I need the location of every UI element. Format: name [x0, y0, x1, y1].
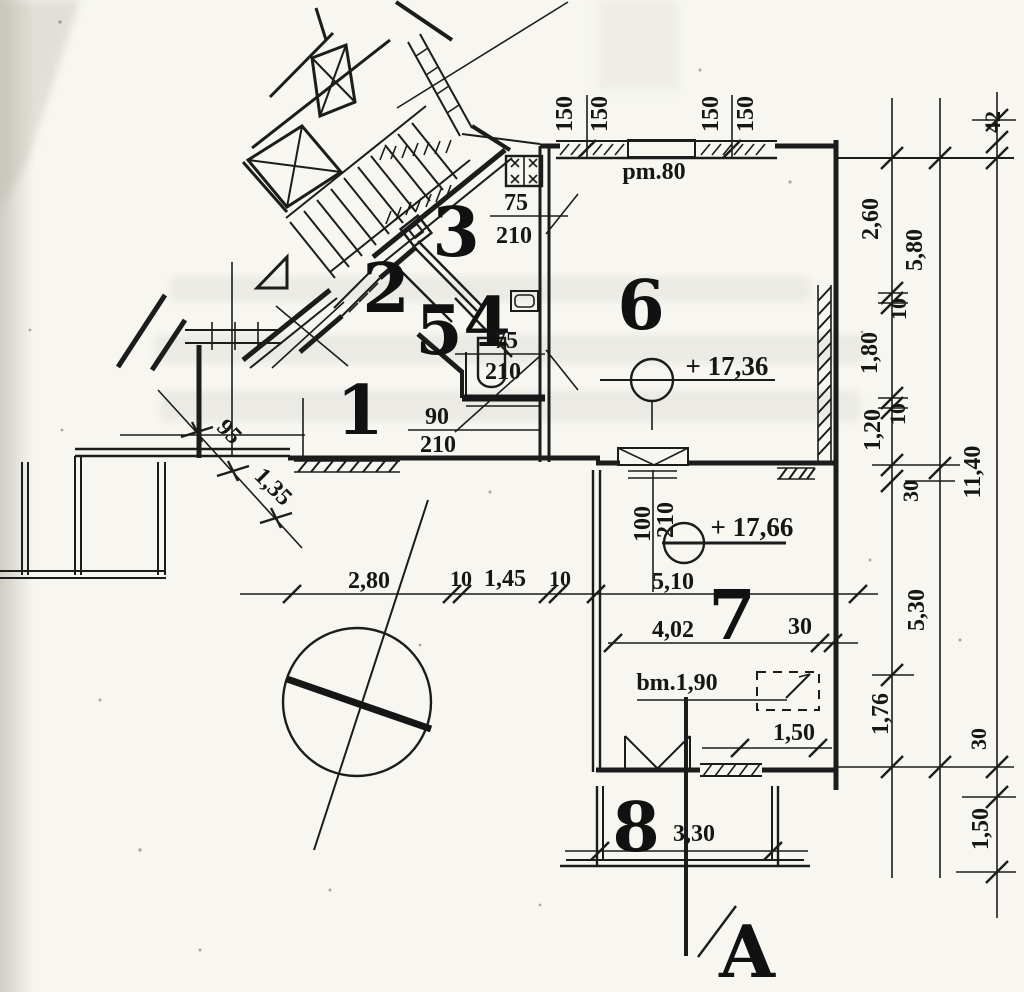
door1-height: 210: [496, 223, 532, 249]
dim-42: 42: [980, 111, 1005, 133]
room7-walls: [593, 470, 836, 957]
radiator-wall: [818, 285, 831, 462]
labels: 1 2 3 4 5 6 7 8 A + 17,36 + 17,66 pm.80 …: [211, 96, 1005, 992]
floor-plan-svg: 1 2 3 4 5 6 7 8 A + 17,36 + 17,66 pm.80 …: [0, 0, 1024, 992]
north-symbol: [283, 500, 431, 850]
radiator-room1: [294, 461, 400, 472]
dim-2-80: 2,80: [348, 568, 390, 594]
door1-width: 75: [504, 190, 528, 216]
room-number-3: 3: [432, 193, 479, 273]
dim-1-35: 1,35: [249, 463, 297, 511]
balcony-door-swing: [625, 736, 690, 768]
dim-1-76: 1,76: [868, 693, 894, 735]
room-number-6: 6: [617, 266, 664, 346]
dim-1-50-right: 1,50: [968, 808, 994, 850]
scan-artifacts: [0, 0, 962, 992]
room-number-8: 8: [612, 788, 659, 868]
dim-1-80: 1,80: [857, 332, 883, 374]
room-number-1: 1: [336, 371, 383, 451]
dim-3-30: 3,30: [673, 821, 715, 847]
room-number-2: 2: [362, 249, 409, 329]
stair-window-band: [408, 34, 540, 150]
dim-5-30: 5,30: [904, 589, 930, 631]
vent-shaft-symbol: [506, 156, 542, 186]
door3-height: 210: [420, 432, 456, 458]
dim-10-r2: 10: [885, 403, 910, 425]
radiator-right: [777, 468, 815, 479]
level-upper-label: + 17,36: [686, 351, 769, 381]
window-width-3: 150: [698, 96, 724, 132]
dim-2-60: 2,60: [858, 198, 884, 240]
dim-30-room7: 30: [788, 614, 812, 640]
door2-height: 210: [485, 359, 521, 385]
dim-30-r1: 30: [898, 480, 923, 502]
door3-width: 90: [425, 404, 449, 430]
window-width-4: 150: [733, 96, 759, 132]
door-swing: [546, 194, 578, 234]
dim-10-a: 10: [450, 566, 472, 591]
balcony-parapet-label: bm.1,90: [636, 670, 717, 696]
dim-10-r1: 10: [886, 298, 911, 320]
dim-1-20: 1,20: [860, 409, 886, 451]
dim-1-45: 1,45: [484, 566, 526, 592]
room-number-7: 7: [708, 576, 755, 656]
dim-1-50-balcony: 1,50: [773, 720, 815, 746]
section-marker-label: A: [718, 909, 776, 992]
dim-5-80: 5,80: [902, 229, 928, 271]
room-number-5: 5: [415, 291, 462, 371]
top-parapet-label: pm.80: [622, 159, 685, 185]
window-width-1: 150: [552, 96, 578, 132]
door2-width: 75: [494, 328, 518, 354]
dim-4-02: 4,02: [652, 617, 694, 643]
door-leaf-box: [628, 140, 695, 157]
window-width-2: 150: [587, 96, 613, 132]
level-lower-label: + 17,66: [711, 512, 794, 542]
door4-height: 210: [653, 502, 679, 538]
dim-11-40: 11,40: [960, 446, 986, 499]
scanned-floor-plan: 1 2 3 4 5 6 7 8 A + 17,36 + 17,66 pm.80 …: [0, 0, 1024, 992]
wardrobe-dashed: [757, 672, 819, 710]
balcony-window: [700, 764, 762, 776]
dim-10-b: 10: [549, 566, 571, 591]
dim-5-10: 5,10: [652, 569, 694, 595]
dim-30-r2: 30: [966, 728, 991, 750]
